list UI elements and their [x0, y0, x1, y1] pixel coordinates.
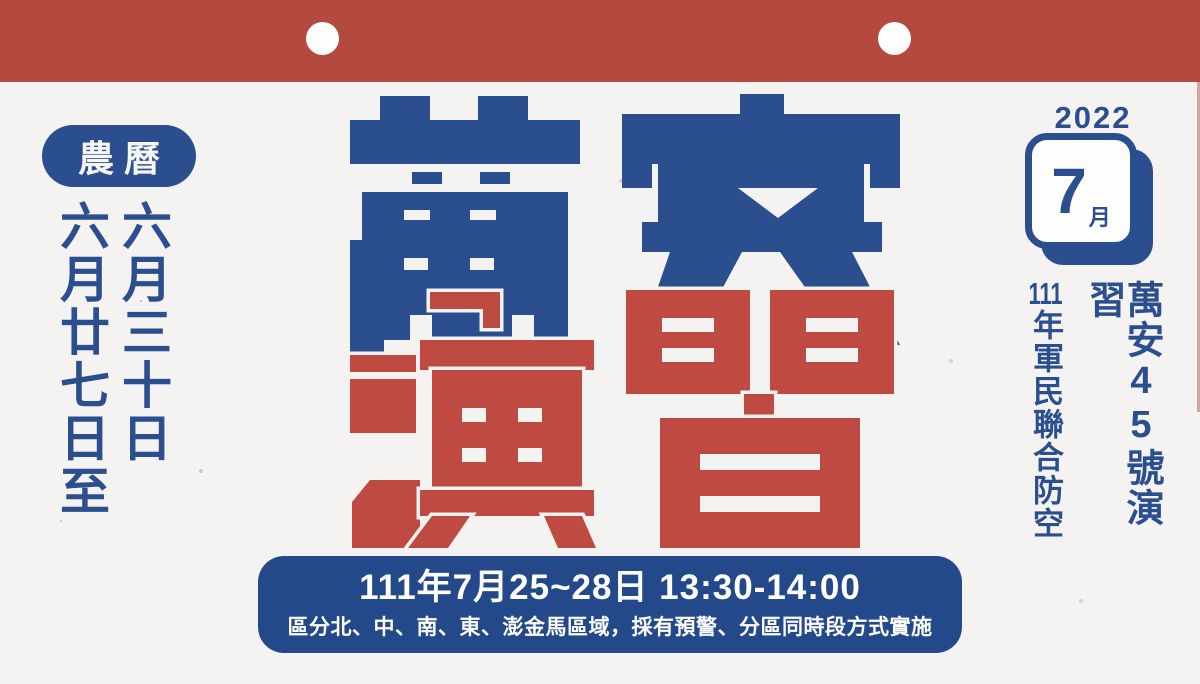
- schedule-details: 區分北、中、南、東、澎金馬區域，採有預警、分區同時段方式實施: [288, 611, 933, 641]
- schedule-dates-times: 111年7月25~28日 13:30-14:00: [359, 568, 861, 608]
- year-label: 2022: [1028, 100, 1158, 136]
- calendar-punch-hole-right-icon: [878, 22, 911, 55]
- calendar-punch-hole-left-icon: [306, 22, 339, 55]
- exercise-name-column: 萬安45號演習: [1084, 280, 1160, 546]
- lunar-calendar-badge: 農曆: [42, 125, 196, 187]
- wanan-exercise-poster: 農曆 六月廿七日至 六月三十日: [0, 0, 1200, 684]
- main-title-glyph-art: [340, 90, 910, 560]
- glyph-wan: [350, 96, 580, 375]
- roc-year-number: 111: [1028, 278, 1063, 309]
- july-calendar-page-icon: 7 月: [1025, 133, 1159, 267]
- calendar-header-strip: [0, 0, 1200, 82]
- lunar-date-end-column: 六月三十日: [118, 200, 168, 480]
- month-number: 7: [1051, 159, 1087, 223]
- calendar-page-front-sheet: 7 月: [1025, 133, 1137, 249]
- exercise-subtitle-column: 111年軍民聯合防空: [1030, 278, 1061, 554]
- month-unit-label: 月: [1089, 200, 1111, 232]
- glyph-xi: [626, 290, 894, 548]
- exercise-subtitle-text: 年軍民聯合防空: [1028, 309, 1063, 540]
- lunar-date-start-column: 六月廿七日至: [56, 200, 106, 530]
- schedule-banner: 111年7月25~28日 13:30-14:00 區分北、中、南、東、澎金馬區域…: [258, 556, 962, 653]
